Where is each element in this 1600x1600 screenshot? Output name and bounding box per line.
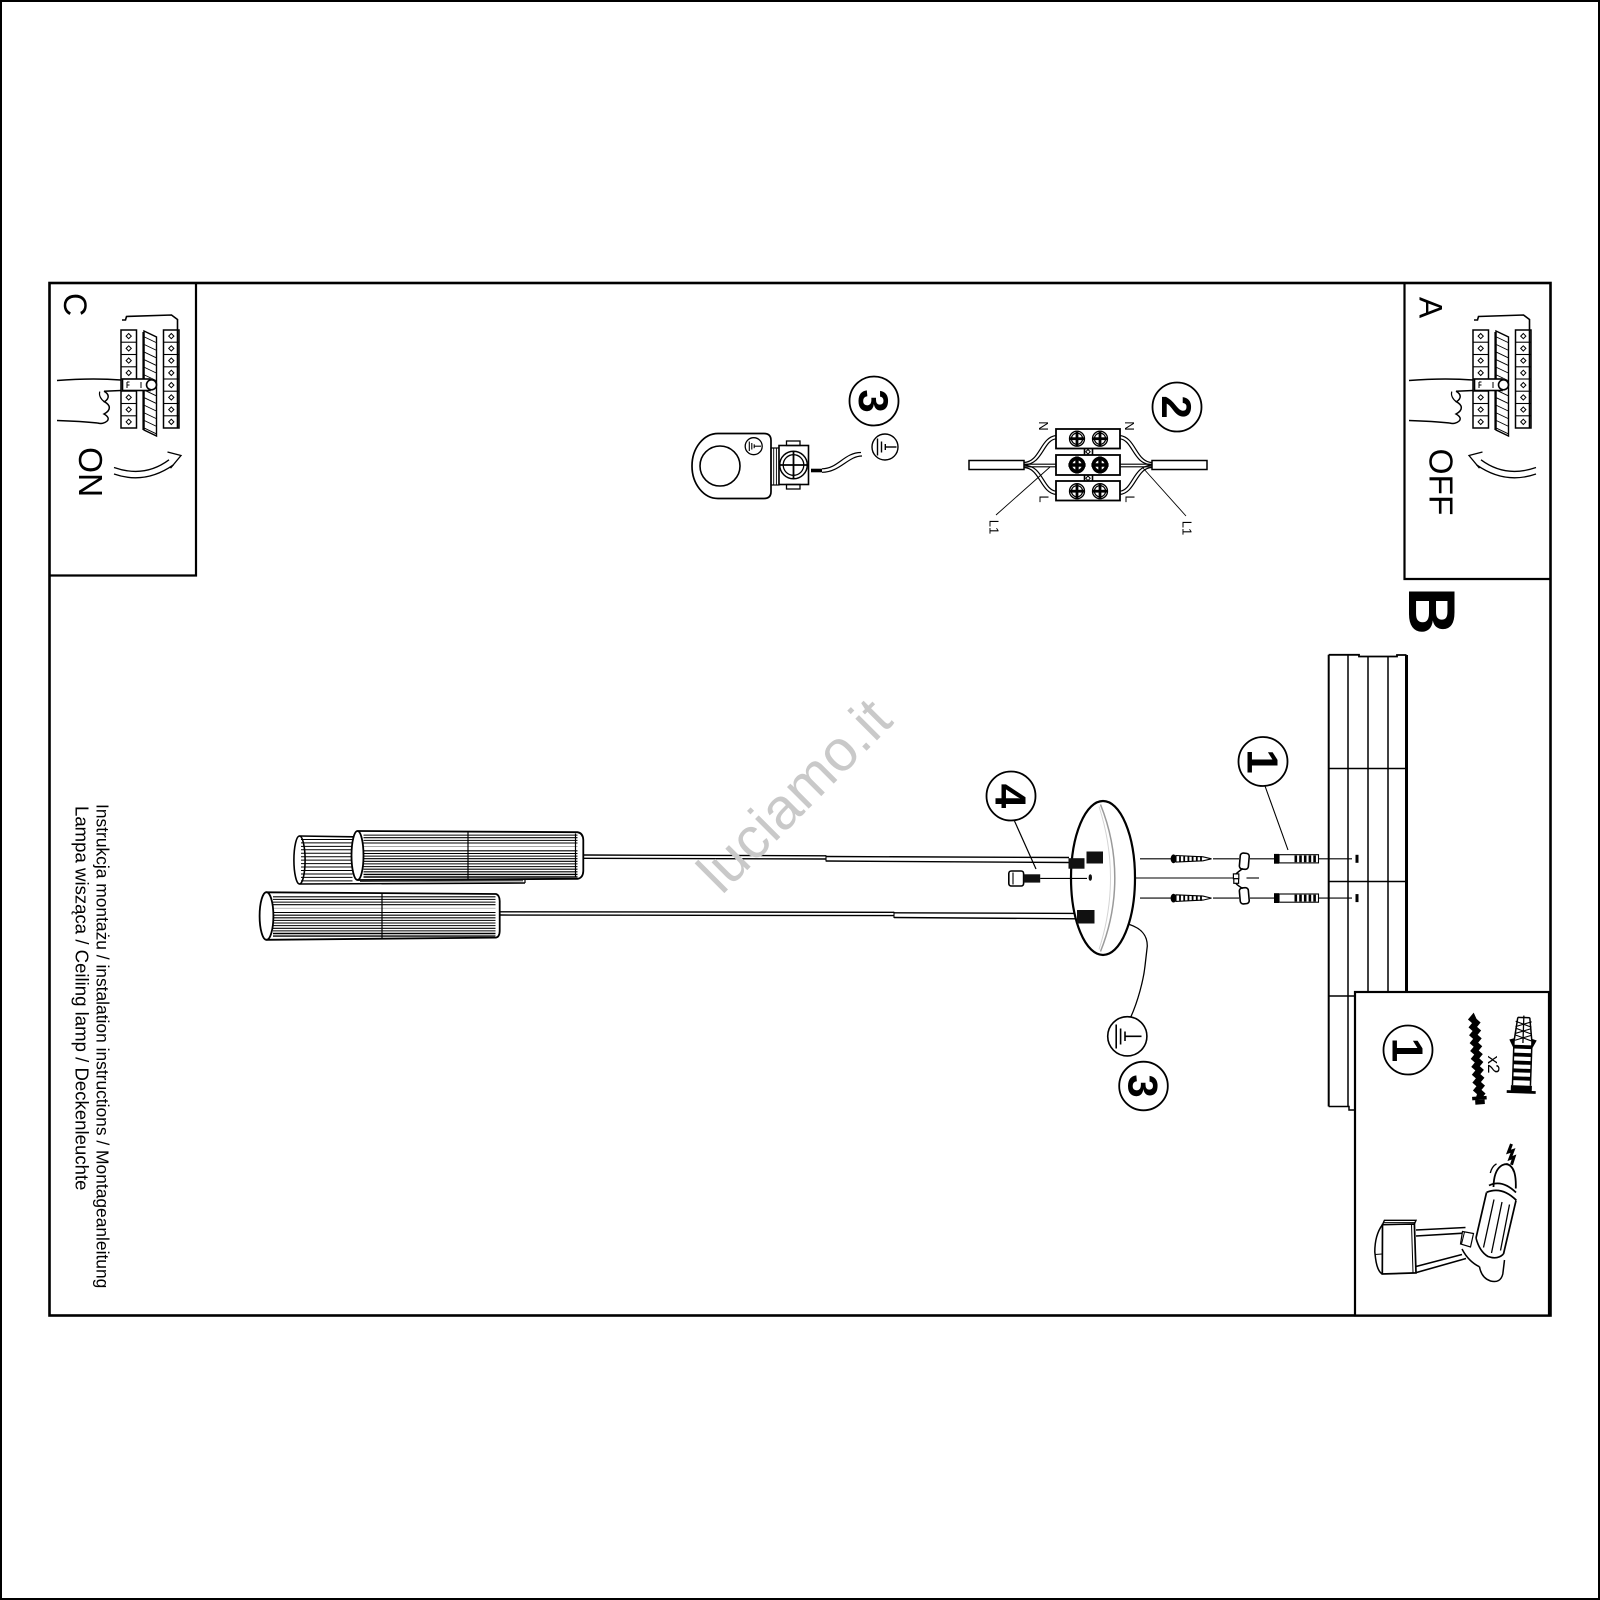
svg-text:1: 1 (1382, 1038, 1431, 1062)
svg-text:ON: ON (71, 447, 108, 497)
svg-text:A: A (1412, 297, 1448, 319)
svg-text:Instrukcja montażu / instalati: Instrukcja montażu / instalation instruc… (92, 804, 112, 1288)
svg-text:C: C (57, 293, 93, 316)
svg-text:B: B (1395, 587, 1469, 635)
svg-text:1: 1 (1237, 749, 1286, 773)
svg-text:2: 2 (1153, 395, 1200, 418)
svg-text:3: 3 (1120, 1074, 1167, 1097)
svg-text:x2: x2 (1484, 1056, 1503, 1074)
svg-text:OFF: OFF (1422, 449, 1459, 516)
svg-text:N: N (1036, 421, 1051, 430)
svg-text:L1: L1 (1179, 521, 1194, 535)
svg-text:L: L (1036, 495, 1051, 502)
svg-text:N: N (1122, 421, 1137, 430)
svg-text:4: 4 (985, 784, 1034, 809)
svg-text:L1: L1 (986, 520, 1001, 534)
svg-text:3: 3 (850, 389, 897, 412)
svg-text:Lampa wisząca / Ceiling lamp /: Lampa wisząca / Ceiling lamp / Deckenleu… (72, 806, 93, 1190)
svg-text:L: L (1122, 495, 1137, 502)
